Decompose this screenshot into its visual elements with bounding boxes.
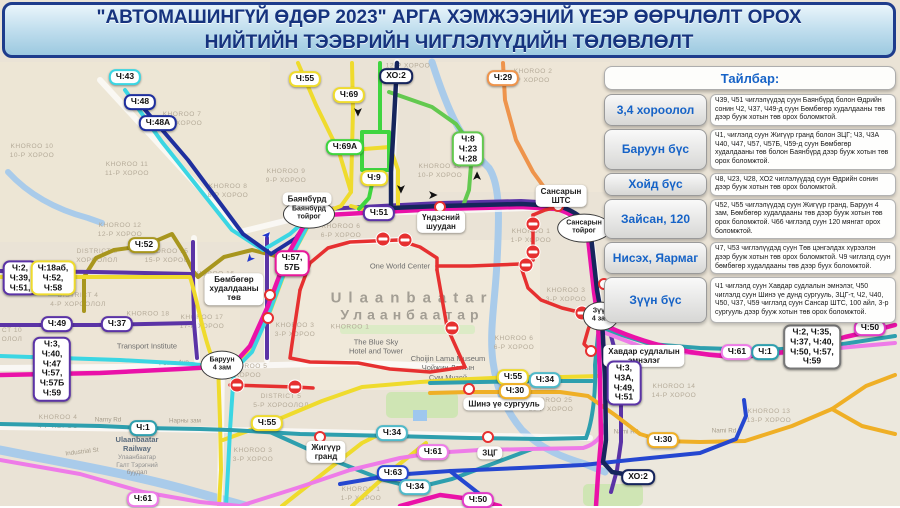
route-badge-Ч-30: Ч:30 xyxy=(499,383,531,399)
route-badge-Ч-48: Ч:48 xyxy=(124,94,156,110)
place-label: Баянбүрд xyxy=(283,192,332,205)
no-entry-icon xyxy=(526,217,541,232)
no-entry-icon xyxy=(230,378,245,393)
legend-row-3: Хойд бүсЧ8, Ч23, Ч28, ХО2 чиглэлүүдэд су… xyxy=(604,173,896,196)
route-line-ch69a xyxy=(359,63,389,209)
legend-zone-label: Баруун бүс xyxy=(604,129,707,170)
legend-panel: Тайлбар:3,4 хороололЧ39, Ч51 чиглэлүүдэд… xyxy=(604,66,896,326)
route-badge-Ч-18аб-Ч-52-Ч-58: Ч:18аб,Ч:52,Ч:58 xyxy=(31,260,76,295)
direction-arrow-icon: ➤ xyxy=(395,184,406,193)
legend-zone-text: Ч1, чиглэлд суун Жигүүр гранд болон ЗЦГ;… xyxy=(710,129,896,170)
no-entry-icon xyxy=(376,232,391,247)
bus-stop-icon xyxy=(463,383,475,395)
no-entry-icon xyxy=(398,233,413,248)
legend-row-6: Зүүн бүсЧ1 чиглэлд суун Хавдар судлалын … xyxy=(604,277,896,323)
title-banner: "АВТОМАШИНГҮЙ ӨДӨР 2023" АРГА ХЭМЖЭЭНИЙ … xyxy=(2,2,896,58)
route-badge-Ч-3-Ч3А-Ч-49-Ч-51: Ч:3,Ч3А,Ч:49,Ч:51 xyxy=(607,360,642,405)
route-badge-Ч-51: Ч:51 xyxy=(363,205,395,221)
route-badge-Ч-34: Ч:34 xyxy=(376,425,408,441)
title-line2: НИЙТИЙН ТЭЭВРИЙН ЧИГЛЭЛҮҮДИЙН ТӨЛӨВЛӨЛТ xyxy=(205,30,694,55)
route-badge-Ч-9: Ч:9 xyxy=(360,170,388,186)
legend-zone-text: Ч8, Ч23, Ч28, ХО2 чиглэлүүдэд суун Өдрий… xyxy=(710,173,896,196)
direction-arrow-icon: ➤ xyxy=(473,171,484,180)
legend-zone-label: Хойд бүс xyxy=(604,173,707,196)
bus-stop-icon xyxy=(262,312,274,324)
place-label: Үндэснийшуудан xyxy=(417,211,465,233)
route-badge-Ч-43: Ч:43 xyxy=(109,69,141,85)
slide: "АВТОМАШИНГҮЙ ӨДӨР 2023" АРГА ХЭМЖЭЭНИЙ … xyxy=(0,0,900,506)
title-line1: "АВТОМАШИНГҮЙ ӨДӨР 2023" АРГА ХЭМЖЭЭНИЙ … xyxy=(96,5,801,30)
direction-arrow-icon: ➤ xyxy=(428,191,437,202)
route-badge-Ч-61: Ч:61 xyxy=(127,491,159,507)
bus-stop-icon xyxy=(585,345,597,357)
place-label: СансарынШТС xyxy=(536,185,587,207)
no-entry-icon xyxy=(526,245,541,260)
place-label: Шинэ үе сургууль xyxy=(463,397,544,410)
no-entry-icon xyxy=(288,380,303,395)
route-badge-Ч-34: Ч:34 xyxy=(399,479,431,495)
route-badge-ХО-2: ХО:2 xyxy=(621,469,655,485)
legend-row-4: Зайсан, 120Ч52, Ч55 чиглэлүүдэд суун Жиг… xyxy=(604,199,896,240)
junction-ellipse: Сансарынтойрог xyxy=(557,214,611,243)
route-badge-Ч-49: Ч:49 xyxy=(41,316,73,332)
route-badge-Ч-37: Ч:37 xyxy=(101,316,133,332)
map-canvas: Ч:43Ч:48Ч:48АЧ:55Ч:69ХО:2Ч:29Ч:69АЧ:9Ч:8… xyxy=(0,0,900,506)
route-badge-Ч-48А: Ч:48А xyxy=(139,115,177,131)
legend-zone-label: 3,4 хороолол xyxy=(604,94,707,126)
place-label: ЗЦГ xyxy=(477,446,502,459)
route-badge-Ч-69А: Ч:69А xyxy=(326,139,364,155)
route-badge-Ч-3-Ч-40-Ч-47-Ч-57-Ч-57Б-Ч-59: Ч:3,Ч:40,Ч:47Ч:57,Ч:57БЧ:59 xyxy=(33,337,71,402)
legend-header: Тайлбар: xyxy=(604,66,896,90)
legend-zone-label: Нисэх, Яармаг xyxy=(604,242,707,274)
direction-arrow-icon: ➤ xyxy=(352,107,363,116)
legend-row-1: 3,4 хороололЧ39, Ч51 чиглэлүүдэд суун Ба… xyxy=(604,94,896,126)
place-label: Бөмбөгөрхудалдаанытөв xyxy=(204,273,263,305)
route-badge-Ч-61: Ч:61 xyxy=(417,444,449,460)
legend-row-2: Баруун бүсЧ1, чиглэлд суун Жигүүр гранд … xyxy=(604,129,896,170)
route-badge-Ч-69: Ч:69 xyxy=(333,87,365,103)
route-badge-Ч-30: Ч:30 xyxy=(647,432,679,448)
route-badge-Ч-1: Ч:1 xyxy=(751,344,779,360)
legend-zone-text: Ч1 чиглэлд суун Хавдар судлалын эмнэлэг,… xyxy=(710,277,896,323)
route-badge-Ч-29: Ч:29 xyxy=(487,70,519,86)
legend-zone-text: Ч7, Ч53 чиглэлүүдэд суун Төв цэнгэлдэх х… xyxy=(710,242,896,274)
route-badge-ХО-2: ХО:2 xyxy=(379,68,413,84)
route-badge-Ч-61: Ч:61 xyxy=(721,344,753,360)
legend-row-5: Нисэх, ЯармагЧ7, Ч53 чиглэлүүдэд суун Тө… xyxy=(604,242,896,274)
route-badge-Ч-1: Ч:1 xyxy=(129,420,157,436)
no-entry-icon xyxy=(445,321,460,336)
place-label: Жигүүргранд xyxy=(306,441,345,463)
route-badge-Ч-8-Ч-23-Ч-28: Ч:8Ч:23Ч:28 xyxy=(452,131,484,166)
legend-zone-label: Зүүн бүс xyxy=(604,277,707,323)
route-badge-Ч-52: Ч:52 xyxy=(128,237,160,253)
legend-zone-label: Зайсан, 120 xyxy=(604,199,707,240)
restricted-zone-lines xyxy=(230,207,593,388)
bus-stop-icon xyxy=(482,431,494,443)
no-entry-icon xyxy=(519,258,534,273)
route-badge-Ч-34: Ч:34 xyxy=(529,372,561,388)
legend-zone-text: Ч39, Ч51 чиглэлүүдэд суун Баянбүрд болон… xyxy=(710,94,896,126)
bus-stop-icon xyxy=(264,289,276,301)
route-badge-Ч-57-57Б: Ч:57,57Б xyxy=(275,250,310,276)
junction-ellipse: Баруун4 зам xyxy=(200,351,243,380)
route-badge-Ч-55: Ч:55 xyxy=(251,415,283,431)
legend-zone-text: Ч52, Ч55 чиглэлүүдэд суун Жигүүр гранд, … xyxy=(710,199,896,240)
route-badge-Ч-55: Ч:55 xyxy=(289,71,321,87)
route-badge-Ч-2-Ч-35-Ч-37-Ч-40-Ч-50-Ч-57-Ч-59: Ч:2, Ч:35,Ч:37, Ч:40,Ч:50, Ч:57,Ч:59 xyxy=(783,324,841,369)
